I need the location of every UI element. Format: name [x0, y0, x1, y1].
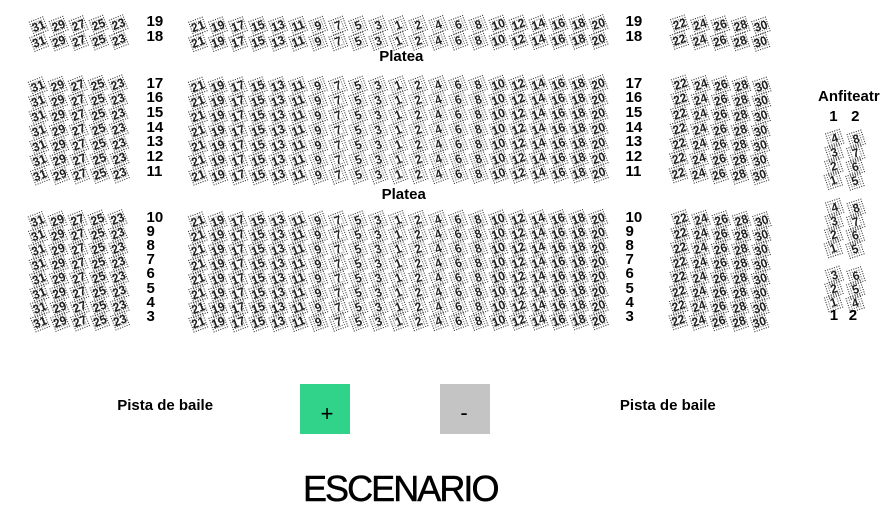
svg-text:18: 18	[570, 75, 588, 93]
svg-text:12: 12	[510, 120, 528, 138]
svg-text:29: 29	[50, 121, 68, 139]
svg-text:13: 13	[269, 136, 287, 154]
svg-text:18: 18	[570, 149, 588, 167]
svg-text:16: 16	[549, 75, 567, 93]
svg-text:20: 20	[590, 134, 608, 152]
svg-text:20: 20	[590, 105, 608, 123]
svg-text:30: 30	[752, 33, 769, 51]
svg-text:22: 22	[671, 105, 688, 123]
svg-text:22: 22	[671, 15, 688, 33]
svg-text:14: 14	[530, 105, 548, 123]
svg-text:18: 18	[570, 90, 588, 108]
svg-text:10: 10	[490, 15, 508, 33]
svg-text:28: 28	[731, 313, 748, 331]
svg-text:23: 23	[110, 135, 128, 153]
svg-text:30: 30	[752, 17, 769, 35]
svg-text:19: 19	[210, 167, 228, 185]
svg-text:29: 29	[50, 17, 68, 35]
svg-text:16: 16	[550, 135, 568, 153]
svg-text:10: 10	[490, 135, 508, 153]
svg-text:10: 10	[489, 76, 507, 94]
svg-text:17: 17	[229, 17, 247, 35]
svg-text:26: 26	[712, 121, 729, 139]
svg-text:15: 15	[249, 107, 267, 125]
svg-text:20: 20	[590, 15, 608, 33]
svg-text:25: 25	[90, 135, 108, 153]
svg-text:2: 2	[413, 33, 424, 49]
svg-text:13: 13	[270, 166, 288, 184]
svg-text:5: 5	[353, 18, 364, 34]
svg-text:23: 23	[109, 75, 127, 93]
svg-text:8: 8	[473, 17, 484, 33]
svg-text:29: 29	[51, 166, 69, 184]
svg-text:13: 13	[269, 122, 287, 140]
svg-text:10: 10	[490, 150, 508, 168]
svg-text:28: 28	[732, 121, 749, 139]
svg-text:26: 26	[712, 16, 729, 34]
svg-text:27: 27	[70, 32, 88, 50]
svg-text:11: 11	[290, 92, 307, 110]
svg-text:6: 6	[453, 166, 464, 182]
svg-text:4: 4	[433, 17, 444, 33]
svg-text:1: 1	[393, 33, 404, 49]
svg-text:24: 24	[691, 120, 708, 138]
svg-text:31: 31	[30, 17, 48, 35]
svg-text:23: 23	[111, 311, 129, 329]
svg-text:14: 14	[530, 165, 548, 183]
svg-text:1: 1	[393, 17, 404, 33]
svg-text:12: 12	[510, 135, 528, 153]
svg-text:21: 21	[189, 137, 207, 155]
svg-text:14: 14	[529, 75, 547, 93]
svg-text:4: 4	[433, 166, 444, 182]
svg-text:13: 13	[270, 313, 288, 331]
svg-text:14: 14	[530, 31, 548, 49]
svg-text:10: 10	[490, 165, 508, 183]
svg-text:17: 17	[230, 151, 248, 169]
svg-text:4: 4	[433, 33, 444, 49]
svg-text:27: 27	[71, 312, 89, 330]
svg-text:11: 11	[290, 136, 307, 154]
svg-text:25: 25	[90, 120, 108, 138]
svg-text:21: 21	[190, 167, 208, 185]
svg-text:11: 11	[290, 33, 307, 51]
svg-text:13: 13	[269, 33, 287, 51]
svg-text:28: 28	[732, 107, 749, 125]
svg-text:28: 28	[731, 151, 748, 169]
svg-text:5: 5	[353, 314, 364, 330]
svg-text:9: 9	[313, 314, 324, 330]
svg-text:28: 28	[732, 33, 749, 51]
svg-text:22: 22	[670, 150, 687, 168]
svg-text:15: 15	[249, 77, 267, 95]
svg-text:30: 30	[753, 77, 770, 95]
svg-text:20: 20	[590, 311, 608, 329]
svg-text:30: 30	[752, 107, 769, 125]
svg-text:27: 27	[70, 16, 88, 34]
svg-text:16: 16	[550, 90, 568, 108]
svg-text:3: 3	[373, 17, 384, 33]
svg-text:1: 1	[393, 314, 404, 330]
svg-text:3: 3	[373, 167, 384, 183]
svg-text:14: 14	[530, 135, 548, 153]
svg-text:17: 17	[229, 107, 247, 125]
svg-text:15: 15	[249, 92, 267, 110]
svg-text:19: 19	[210, 314, 228, 332]
svg-text:22: 22	[672, 90, 689, 108]
svg-text:8: 8	[473, 33, 484, 49]
svg-text:30: 30	[752, 137, 769, 155]
svg-text:10: 10	[490, 120, 508, 138]
svg-text:19: 19	[209, 77, 227, 95]
svg-text:31: 31	[30, 107, 48, 125]
svg-text:3: 3	[373, 314, 384, 330]
svg-text:25: 25	[89, 76, 107, 94]
svg-text:7: 7	[333, 33, 344, 49]
svg-text:14: 14	[530, 90, 548, 108]
svg-text:25: 25	[91, 312, 109, 330]
svg-text:11: 11	[290, 17, 307, 35]
svg-text:18: 18	[570, 164, 588, 182]
svg-text:18: 18	[570, 120, 588, 138]
svg-text:16: 16	[550, 311, 568, 329]
svg-text:11: 11	[289, 77, 306, 95]
svg-text:14: 14	[530, 120, 548, 138]
svg-text:22: 22	[670, 312, 687, 330]
svg-text:27: 27	[69, 91, 87, 109]
svg-text:31: 31	[30, 137, 48, 155]
svg-text:12: 12	[510, 90, 528, 108]
svg-text:20: 20	[590, 75, 608, 93]
svg-text:5: 5	[353, 33, 364, 49]
svg-text:26: 26	[710, 313, 727, 331]
svg-text:22: 22	[671, 31, 688, 49]
svg-text:26: 26	[710, 166, 727, 184]
svg-text:21: 21	[189, 152, 207, 170]
svg-text:16: 16	[550, 15, 568, 33]
svg-text:17: 17	[229, 137, 247, 155]
svg-text:12: 12	[510, 165, 528, 183]
svg-text:29: 29	[50, 106, 68, 124]
svg-text:16: 16	[550, 31, 568, 49]
svg-text:10: 10	[490, 312, 508, 330]
svg-text:15: 15	[250, 151, 268, 169]
svg-text:15: 15	[249, 33, 267, 51]
svg-text:23: 23	[110, 15, 128, 33]
svg-text:22: 22	[672, 75, 689, 93]
svg-text:8: 8	[473, 313, 484, 329]
svg-text:31: 31	[31, 166, 49, 184]
svg-text:19: 19	[209, 33, 227, 51]
svg-text:24: 24	[691, 32, 708, 50]
svg-text:12: 12	[510, 15, 528, 33]
svg-text:17: 17	[230, 313, 248, 331]
svg-text:27: 27	[70, 136, 88, 154]
svg-text:28: 28	[733, 77, 750, 95]
svg-text:10: 10	[490, 90, 508, 108]
svg-text:5: 5	[353, 167, 364, 183]
svg-text:2: 2	[413, 313, 424, 329]
svg-text:16: 16	[550, 150, 568, 168]
svg-text:20: 20	[590, 164, 608, 182]
svg-text:13: 13	[269, 92, 287, 110]
svg-text:27: 27	[71, 150, 89, 168]
svg-text:19: 19	[209, 92, 227, 110]
svg-text:29: 29	[50, 32, 68, 50]
svg-text:17: 17	[229, 122, 247, 140]
svg-text:1: 1	[828, 172, 839, 187]
svg-text:11: 11	[290, 151, 307, 169]
svg-text:29: 29	[49, 77, 67, 95]
svg-text:17: 17	[229, 92, 247, 110]
svg-text:31: 31	[29, 77, 47, 95]
svg-text:29: 29	[51, 313, 69, 331]
svg-text:12: 12	[510, 105, 528, 123]
svg-text:20: 20	[590, 31, 608, 49]
svg-text:5: 5	[850, 241, 861, 256]
svg-text:5: 5	[850, 173, 861, 188]
svg-text:7: 7	[333, 167, 344, 183]
svg-text:1: 1	[393, 167, 404, 183]
svg-text:19: 19	[209, 17, 227, 35]
svg-text:10: 10	[490, 31, 508, 49]
svg-text:19: 19	[209, 152, 227, 170]
svg-text:17: 17	[229, 33, 247, 51]
svg-text:21: 21	[190, 314, 208, 332]
svg-text:24: 24	[691, 135, 708, 153]
svg-text:18: 18	[570, 15, 588, 33]
svg-text:9: 9	[313, 167, 324, 183]
svg-text:24: 24	[690, 150, 707, 168]
svg-text:20: 20	[590, 149, 608, 167]
svg-text:12: 12	[510, 312, 528, 330]
svg-text:31: 31	[30, 122, 48, 140]
svg-text:23: 23	[110, 120, 128, 138]
svg-text:15: 15	[250, 313, 268, 331]
svg-text:8: 8	[473, 166, 484, 182]
svg-text:30: 30	[753, 92, 770, 110]
svg-text:19: 19	[209, 107, 227, 125]
svg-text:19: 19	[209, 122, 227, 140]
svg-text:29: 29	[50, 136, 68, 154]
svg-text:11: 11	[290, 166, 307, 184]
svg-text:2: 2	[413, 166, 424, 182]
svg-text:27: 27	[70, 121, 88, 139]
svg-text:24: 24	[690, 312, 707, 330]
svg-text:24: 24	[692, 91, 709, 109]
svg-text:7: 7	[333, 314, 344, 330]
svg-text:19: 19	[209, 137, 227, 155]
svg-text:26: 26	[713, 76, 730, 94]
svg-text:25: 25	[90, 16, 108, 34]
svg-text:29: 29	[51, 151, 69, 169]
svg-text:20: 20	[590, 120, 608, 138]
svg-text:18: 18	[570, 311, 588, 329]
svg-text:15: 15	[249, 137, 267, 155]
svg-text:30: 30	[751, 152, 768, 170]
svg-text:13: 13	[270, 151, 288, 169]
svg-text:24: 24	[690, 165, 707, 183]
svg-text:27: 27	[70, 106, 88, 124]
svg-text:6: 6	[453, 33, 464, 49]
svg-text:14: 14	[530, 150, 548, 168]
svg-text:31: 31	[31, 313, 49, 331]
svg-text:26: 26	[711, 136, 728, 154]
svg-text:22: 22	[670, 165, 687, 183]
svg-text:21: 21	[189, 122, 207, 140]
svg-text:21: 21	[189, 17, 207, 35]
svg-text:23: 23	[109, 90, 127, 108]
svg-text:15: 15	[249, 122, 267, 140]
svg-text:13: 13	[269, 77, 287, 95]
svg-text:30: 30	[752, 122, 769, 140]
svg-text:26: 26	[712, 106, 729, 124]
svg-text:31: 31	[30, 33, 48, 51]
svg-text:6: 6	[453, 17, 464, 33]
svg-text:17: 17	[229, 77, 247, 95]
svg-text:17: 17	[230, 166, 248, 184]
svg-text:21: 21	[189, 33, 207, 51]
svg-text:24: 24	[691, 16, 708, 34]
svg-text:16: 16	[550, 105, 568, 123]
svg-text:28: 28	[733, 92, 750, 110]
svg-text:27: 27	[71, 165, 89, 183]
svg-text:29: 29	[49, 92, 67, 110]
svg-text:1: 1	[828, 241, 839, 256]
svg-text:30: 30	[751, 167, 768, 185]
svg-text:14: 14	[530, 15, 548, 33]
svg-text:25: 25	[90, 105, 108, 123]
svg-text:21: 21	[189, 77, 207, 95]
svg-text:10: 10	[490, 105, 508, 123]
svg-text:18: 18	[570, 31, 588, 49]
svg-text:26: 26	[711, 151, 728, 169]
svg-text:28: 28	[732, 17, 749, 35]
svg-text:9: 9	[313, 18, 324, 34]
svg-text:25: 25	[91, 150, 109, 168]
svg-text:15: 15	[250, 166, 268, 184]
svg-text:12: 12	[510, 150, 528, 168]
svg-text:26: 26	[711, 32, 728, 50]
svg-text:23: 23	[110, 31, 128, 49]
svg-text:3: 3	[373, 33, 384, 49]
svg-text:30: 30	[751, 314, 768, 332]
svg-text:24: 24	[692, 76, 709, 94]
svg-text:12: 12	[510, 31, 528, 49]
svg-text:11: 11	[290, 313, 307, 331]
svg-text:18: 18	[570, 135, 588, 153]
svg-text:22: 22	[671, 135, 688, 153]
svg-text:13: 13	[269, 17, 287, 35]
svg-text:23: 23	[111, 164, 129, 182]
svg-text:15: 15	[249, 17, 267, 35]
svg-text:11: 11	[290, 107, 307, 125]
svg-text:28: 28	[731, 136, 748, 154]
svg-text:25: 25	[89, 91, 107, 109]
svg-text:21: 21	[189, 107, 207, 125]
svg-text:13: 13	[269, 107, 287, 125]
svg-text:16: 16	[550, 120, 568, 138]
svg-text:12: 12	[509, 75, 527, 93]
svg-text:14: 14	[530, 312, 548, 330]
svg-text:22: 22	[671, 120, 688, 138]
svg-text:20: 20	[590, 90, 608, 108]
svg-text:31: 31	[31, 151, 49, 169]
svg-text:16: 16	[550, 164, 568, 182]
svg-text:23: 23	[111, 149, 129, 167]
svg-text:11: 11	[290, 122, 307, 140]
svg-text:18: 18	[570, 105, 588, 123]
svg-text:23: 23	[110, 105, 128, 123]
svg-text:4: 4	[433, 313, 444, 329]
svg-text:25: 25	[91, 165, 109, 183]
svg-text:31: 31	[29, 92, 47, 110]
svg-text:25: 25	[90, 31, 108, 49]
svg-text:28: 28	[731, 166, 748, 184]
svg-text:7: 7	[333, 18, 344, 34]
svg-text:9: 9	[313, 34, 324, 50]
svg-text:27: 27	[69, 76, 87, 94]
svg-text:2: 2	[413, 17, 424, 33]
svg-text:24: 24	[692, 106, 709, 124]
svg-text:21: 21	[189, 92, 207, 110]
svg-text:6: 6	[453, 313, 464, 329]
svg-text:26: 26	[712, 91, 729, 109]
